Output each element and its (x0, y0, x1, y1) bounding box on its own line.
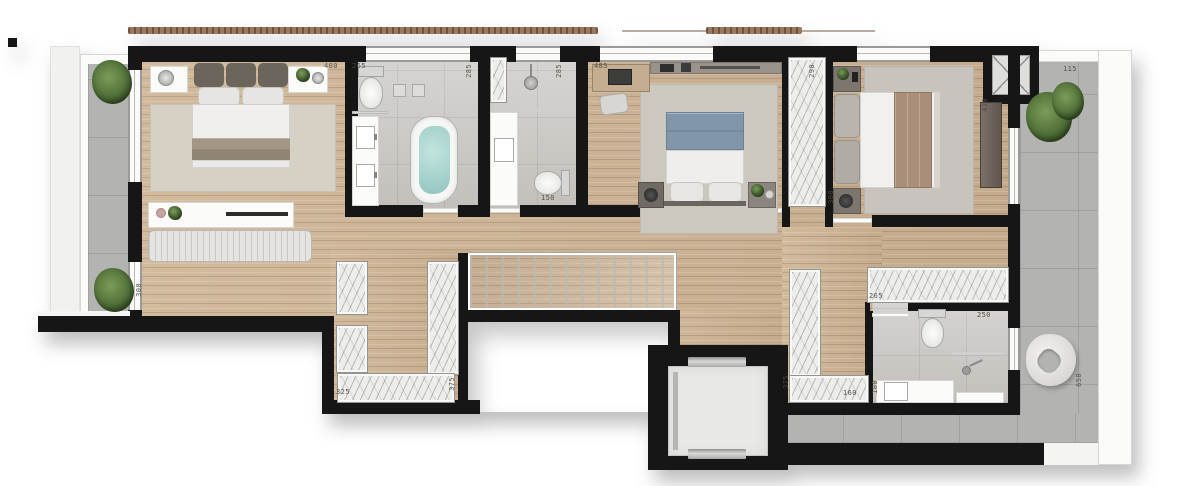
shower-head-icon (524, 76, 538, 90)
toilet-bowl (359, 77, 383, 109)
right-wall (1008, 46, 1020, 128)
pergola-icon (128, 27, 598, 34)
wardrobe-wall-right (825, 46, 833, 227)
wall-stub (8, 38, 17, 47)
towel-shelf-icon (412, 84, 425, 97)
toilet-icon (561, 170, 570, 196)
potted-plant-icon (92, 60, 132, 104)
door-threshold (833, 218, 872, 223)
wardrobe-icon (428, 262, 458, 374)
window (516, 46, 560, 62)
table-lamp-icon (644, 188, 658, 202)
toilet-icon (358, 66, 384, 77)
bottom-right-ledge (1044, 443, 1098, 465)
shower-glass (518, 109, 576, 112)
laptop-icon (608, 69, 632, 85)
faucet-icon (374, 134, 377, 140)
pillow (708, 182, 742, 202)
potted-plant-icon (296, 68, 310, 82)
shower-window (1008, 328, 1020, 370)
bath3-top-wall (865, 302, 870, 311)
stairs-bottom-wall (455, 310, 680, 322)
wardrobe-icon (790, 376, 868, 402)
door-threshold (490, 208, 520, 213)
potted-plant-icon (1052, 82, 1084, 120)
elevator-door-sill (688, 357, 746, 367)
building-footprint: 4002652852854852904101153001503002652501… (0, 0, 1182, 486)
vanity-sink-icon (494, 138, 514, 162)
table-lamp-icon (839, 194, 853, 208)
table-lamp-icon (312, 72, 324, 84)
window (366, 46, 470, 62)
left-outer-band (50, 46, 80, 318)
window (857, 46, 930, 62)
wardrobe-icon (868, 268, 1008, 302)
towel-rail (352, 111, 388, 114)
vanity-sink-icon (884, 382, 908, 401)
shower-glass (952, 352, 1004, 355)
vanity-sink-icon (356, 164, 375, 187)
wardrobe-icon (337, 262, 367, 314)
closet-left-wall (322, 318, 334, 410)
duct-shaft-icon (491, 58, 506, 102)
bottom-outer-wall (782, 443, 1044, 465)
headboard-cushion (194, 63, 224, 87)
bed-blanket-blue (666, 112, 744, 150)
dresser-icon (980, 102, 1002, 188)
decor-tray (765, 190, 774, 199)
toilet-bowl (534, 171, 562, 195)
elevator-door-sill (688, 449, 746, 459)
vanity-sink-icon (356, 126, 375, 149)
wardrobe-icon (338, 374, 454, 402)
table-lamp-icon (158, 70, 174, 86)
elevator-cab-icon (668, 366, 768, 456)
headboard-cushion (226, 63, 256, 87)
shelf-decor (700, 66, 760, 69)
bath-bottom-wall (520, 205, 588, 217)
potted-plant-icon (168, 206, 182, 220)
headboard-cushion (258, 63, 288, 87)
double-bed-icon (192, 104, 290, 140)
wardrobe-icon (337, 326, 367, 372)
decor-phone (852, 72, 858, 82)
headboard-cushion (834, 94, 860, 138)
bedroom3-bottom-wall (872, 215, 1008, 227)
pillow (670, 182, 704, 202)
wall-bath1-bath2 (478, 46, 490, 216)
floor-plan-sheet: 4002652852854852904101153001503002652501… (0, 0, 1182, 486)
bath3-bottom-wall (782, 403, 1012, 415)
closet-bottom-wall (322, 400, 480, 414)
handheld-shower-icon (962, 366, 971, 375)
desk-chair-icon (599, 92, 630, 116)
headboard-cushion (834, 140, 860, 184)
bath-bottom-wall (345, 205, 423, 217)
wardrobe-icon (789, 58, 825, 206)
door-threshold (423, 208, 458, 213)
headboard (664, 201, 746, 206)
wardrobe-icon (790, 270, 820, 376)
terrace-sliding-door (1008, 128, 1020, 204)
console-decor (226, 212, 288, 216)
toilet-icon (918, 309, 946, 318)
potted-plant-icon (837, 68, 849, 80)
pergola-icon (706, 27, 802, 34)
bed-blanket-tan (894, 92, 932, 188)
bed-foot (934, 92, 940, 188)
bath-bottom-wall (458, 205, 490, 217)
elevator-rail (673, 372, 678, 450)
console-vase (156, 208, 166, 218)
staircase-icon (468, 253, 676, 310)
door-leaf (872, 313, 909, 317)
double-bed-icon (666, 150, 744, 184)
terrace-south-arm (785, 413, 1098, 443)
void-open-below (466, 322, 668, 412)
window (600, 46, 713, 62)
right-wall (1008, 204, 1020, 328)
faucet-icon (374, 172, 377, 178)
bed-foot (192, 160, 290, 168)
toilet-bowl (921, 318, 944, 348)
terrace-parapet-right (1098, 50, 1132, 465)
potted-plant-icon (751, 184, 764, 197)
wall-bath2-bedroom2 (576, 46, 588, 216)
potted-plant-icon (94, 268, 134, 312)
shelf-decor (660, 64, 674, 72)
closet-stair-wall (458, 253, 468, 410)
left-wing-bottom-wall (38, 316, 334, 332)
bench-icon (148, 230, 312, 262)
bed-blanket (192, 138, 290, 162)
shower-bench (956, 392, 1004, 403)
towel-shelf-icon (393, 84, 406, 97)
shelf-decor (681, 63, 691, 72)
bathtub-water (419, 126, 450, 194)
